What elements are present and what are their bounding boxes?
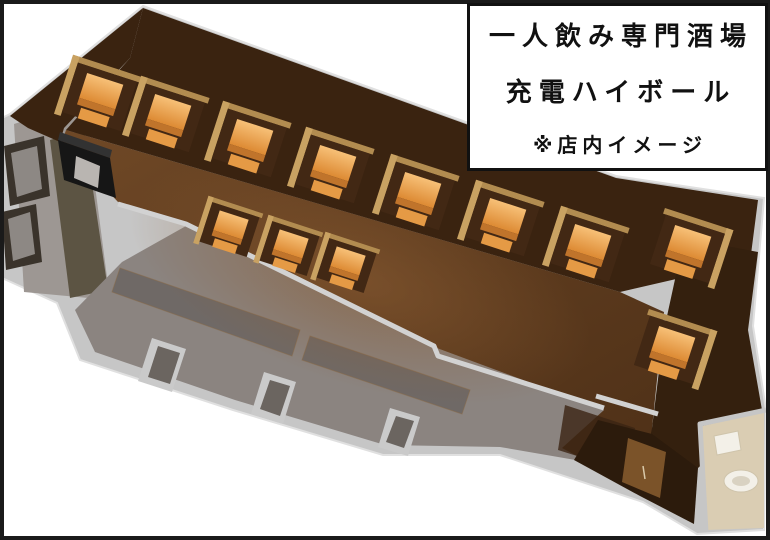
image-note-label: ※店内イメージ — [528, 129, 707, 158]
shop-name-label: 充電ハイボール — [499, 72, 736, 109]
toilet-bowl-inner — [732, 476, 750, 486]
info-overlay: 一人飲み専門酒場 充電ハイボール ※店内イメージ — [467, 3, 768, 171]
screenshot-root: 一人飲み専門酒場 充電ハイボール ※店内イメージ — [0, 0, 770, 540]
shop-type-label: 一人飲み専門酒場 — [482, 16, 753, 53]
